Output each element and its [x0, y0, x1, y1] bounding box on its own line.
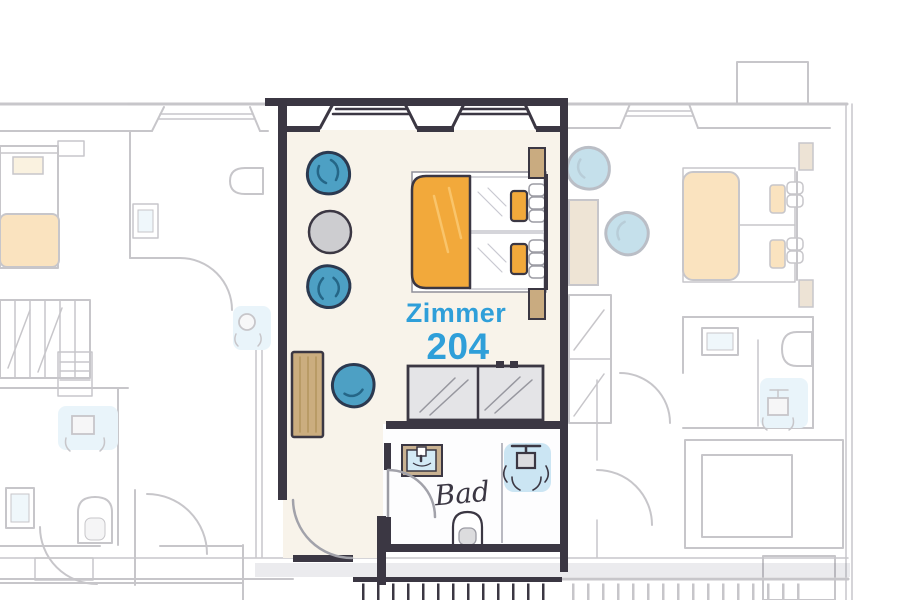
right-room-bed — [683, 143, 813, 307]
orange-duvet — [412, 176, 470, 288]
left-room-wardrobe — [0, 300, 92, 396]
door-swing-faded — [180, 258, 232, 310]
nightstand-faded — [799, 143, 813, 170]
bottom-left-faded — [0, 388, 243, 600]
shower-head — [239, 314, 255, 330]
entry-nook-floor — [283, 424, 383, 558]
door-swing-faded — [597, 470, 652, 525]
room-name-label: Zimmer — [406, 298, 507, 328]
left-room-dresser — [58, 141, 84, 156]
armchair-faded — [598, 204, 657, 263]
round-side-table — [309, 211, 351, 253]
toilet — [453, 512, 482, 546]
armchair — [307, 152, 349, 194]
left-room-bed — [0, 141, 84, 268]
shower-head — [72, 416, 94, 434]
stairwell-inner — [702, 455, 792, 537]
room-204[interactable]: Zimmer 204 Bad — [265, 98, 568, 592]
wardrobe-handle — [510, 361, 518, 368]
mirror-wardrobe — [408, 361, 543, 420]
nightstand — [529, 148, 545, 178]
room-number-label: 204 — [426, 326, 489, 367]
balcony — [737, 62, 808, 103]
wardrobe-faded — [569, 295, 611, 423]
headboard — [544, 174, 548, 290]
right-room-faded — [564, 62, 852, 600]
toilet — [782, 332, 812, 366]
armchair-faded — [564, 144, 613, 192]
desk-faded — [569, 200, 598, 285]
corridor-band — [255, 563, 850, 577]
nightstand-faded — [799, 280, 813, 307]
washbasin — [402, 445, 442, 476]
right-bathroom-faded — [620, 317, 813, 430]
wardrobe-handle — [496, 361, 504, 368]
toilet — [230, 168, 263, 194]
bathroom-label: Bad — [432, 475, 491, 513]
orange-pillow — [511, 191, 527, 221]
left-room-faded — [0, 104, 271, 600]
shower-head — [517, 453, 535, 468]
floor-plan: Zimmer 204 Bad — [0, 0, 900, 600]
faucet-icon — [417, 447, 426, 456]
door-swing-faded — [620, 373, 670, 423]
nightstand — [529, 289, 545, 319]
shower-head — [768, 398, 788, 415]
stairwell-outer — [685, 440, 843, 548]
orange-pillow — [511, 244, 527, 274]
